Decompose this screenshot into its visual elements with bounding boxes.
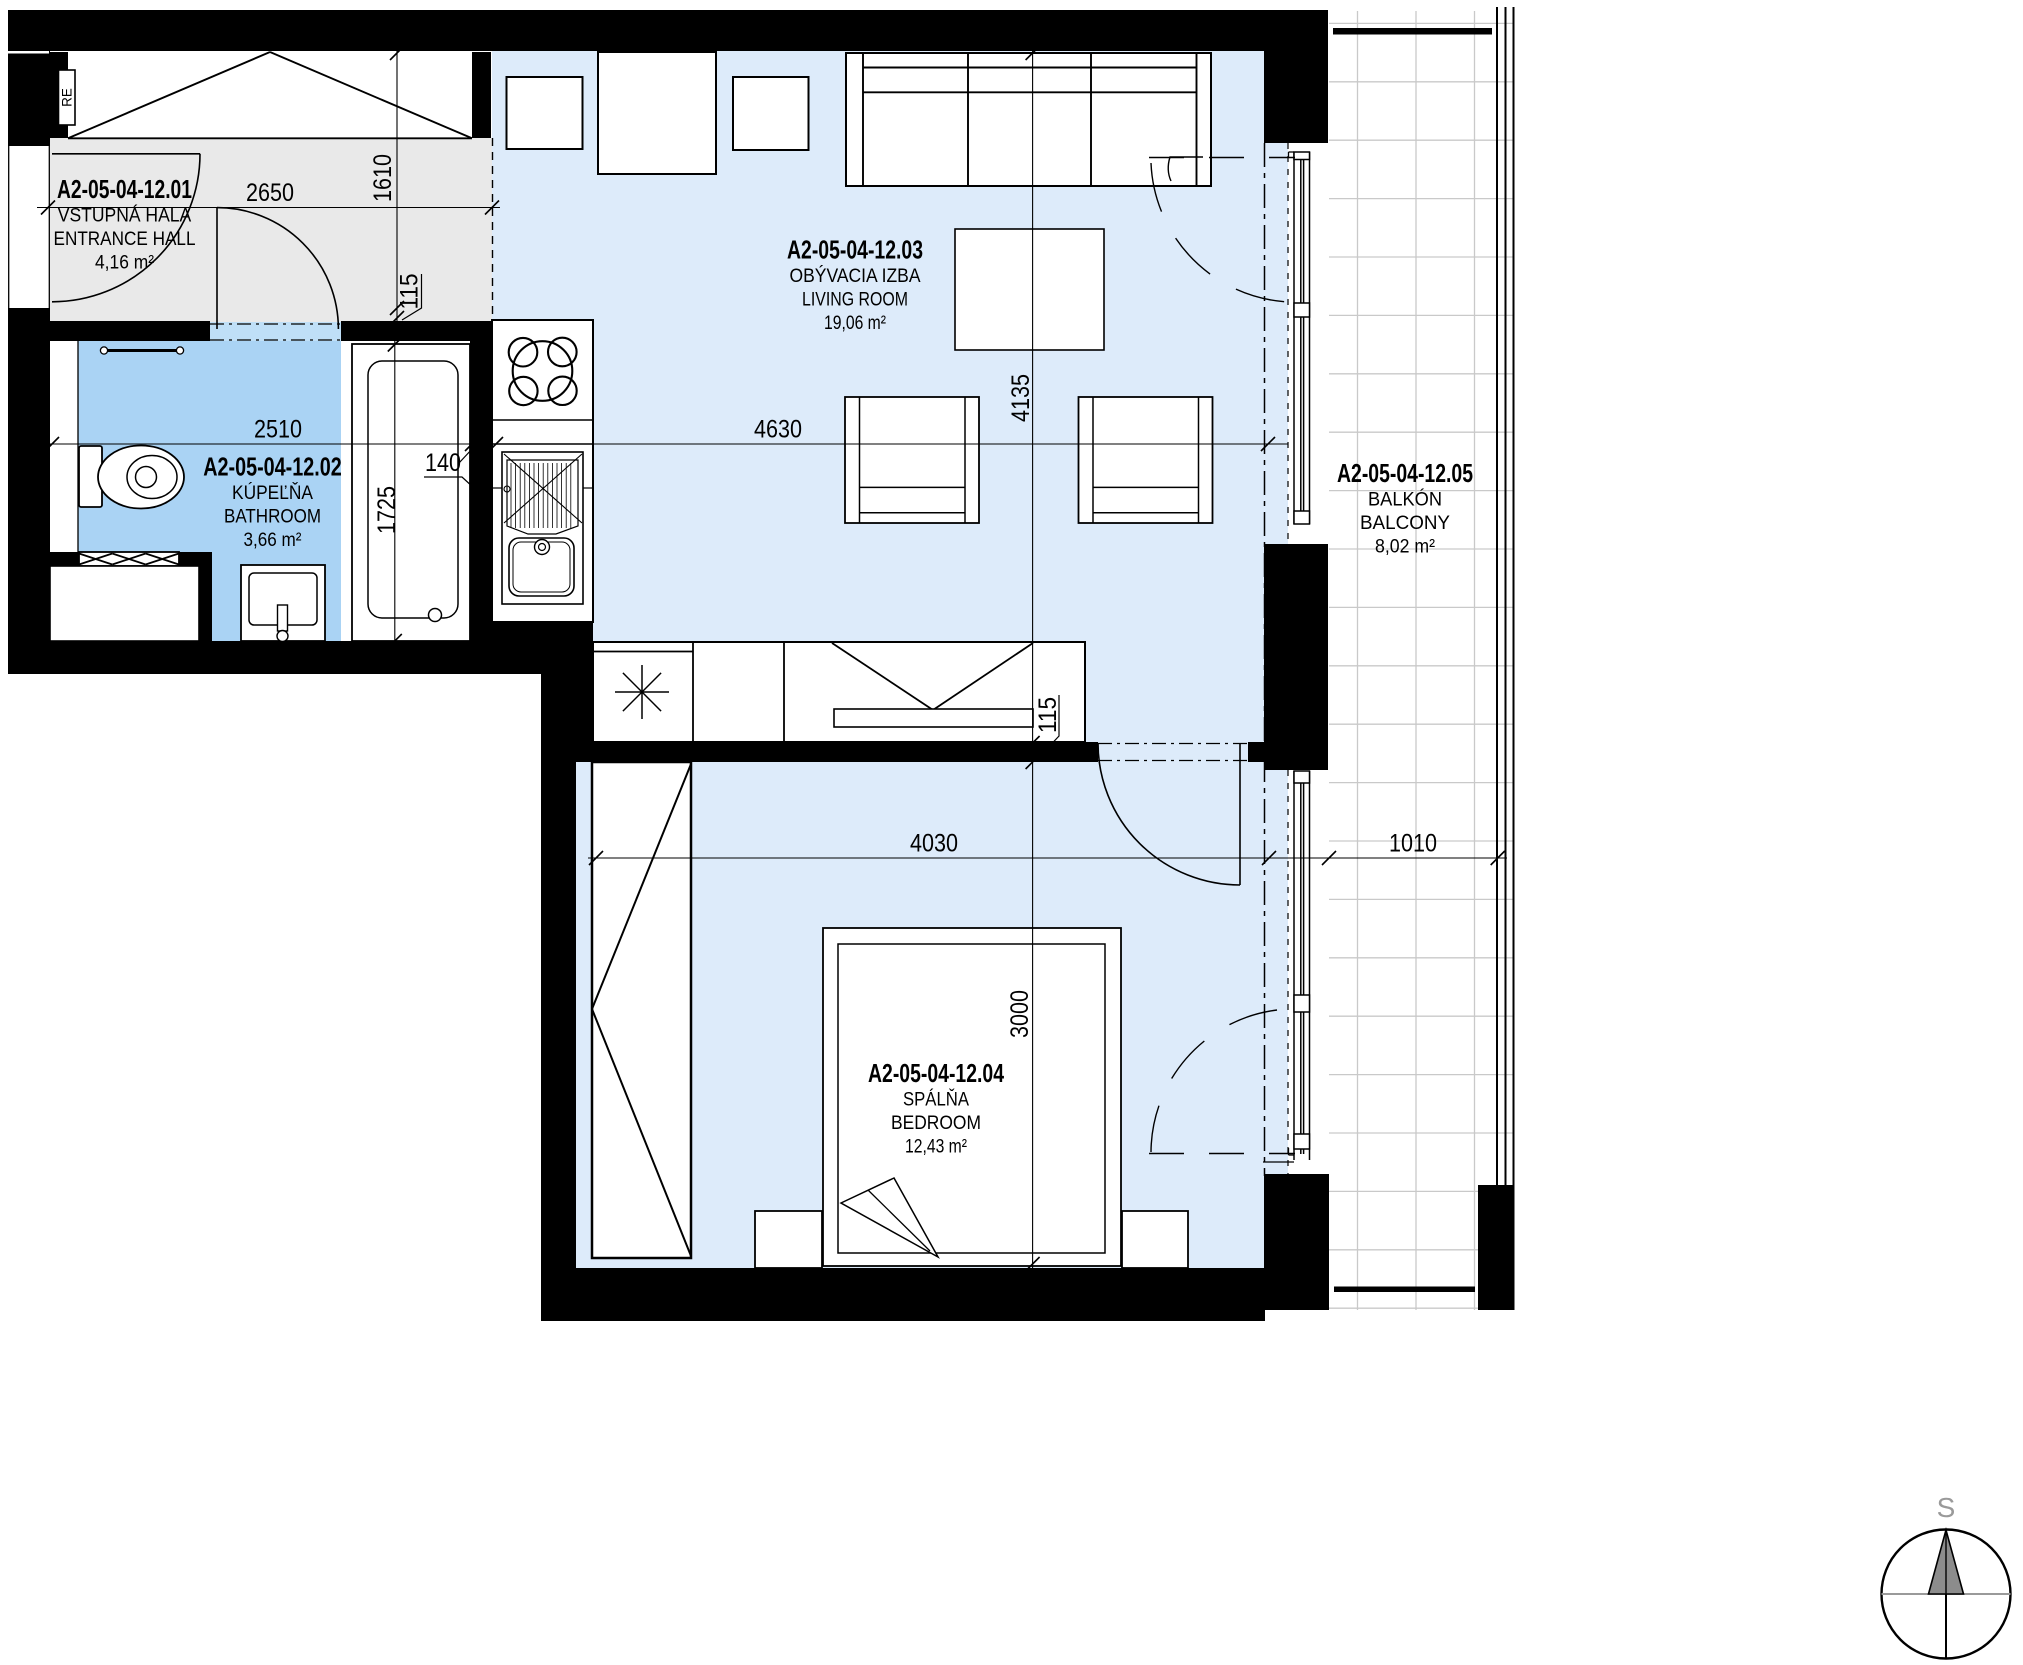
svg-text:115: 115 [396,274,424,310]
svg-text:BATHROOM: BATHROOM [224,506,321,528]
svg-text:2510: 2510 [254,416,302,444]
svg-text:12,43 m²: 12,43 m² [905,1136,967,1158]
svg-text:A2-05-04-12.03: A2-05-04-12.03 [787,237,923,265]
svg-text:SPÁLŇA: SPÁLŇA [903,1088,969,1111]
svg-text:1610: 1610 [369,154,397,202]
svg-text:19,06 m²: 19,06 m² [824,312,886,334]
svg-text:A2-05-04-12.04: A2-05-04-12.04 [868,1060,1005,1088]
svg-text:ENTRANCE HALL: ENTRANCE HALL [54,228,196,250]
svg-text:LIVING ROOM: LIVING ROOM [802,289,908,311]
svg-text:A2-05-04-12.05: A2-05-04-12.05 [1337,460,1473,488]
svg-text:A2-05-04-12.02: A2-05-04-12.02 [203,454,342,482]
svg-text:BEDROOM: BEDROOM [891,1112,981,1134]
svg-text:8,02 m²: 8,02 m² [1375,536,1435,558]
svg-text:A2-05-04-12.01: A2-05-04-12.01 [57,176,192,204]
svg-text:KÚPEĽŇA: KÚPEĽŇA [232,481,313,504]
svg-text:4630: 4630 [754,416,802,444]
svg-text:RE: RE [60,88,75,107]
svg-text:2650: 2650 [246,179,294,207]
svg-text:115: 115 [1034,697,1062,733]
svg-text:4030: 4030 [910,830,958,858]
svg-text:OBÝVACIA IZBA: OBÝVACIA IZBA [790,264,921,287]
svg-text:140: 140 [425,449,461,477]
svg-text:3000: 3000 [1006,990,1034,1038]
svg-text:4,16 m²: 4,16 m² [95,251,154,273]
svg-text:4135: 4135 [1007,374,1035,422]
svg-text:VSTUPNÁ HALA: VSTUPNÁ HALA [58,203,192,226]
svg-text:BALCONY: BALCONY [1360,512,1450,534]
svg-text:S: S [1937,1492,1956,1523]
svg-text:1010: 1010 [1389,830,1437,858]
svg-text:3,66 m²: 3,66 m² [244,529,302,551]
svg-text:BALKÓN: BALKÓN [1368,488,1442,511]
svg-text:1725: 1725 [373,486,401,534]
